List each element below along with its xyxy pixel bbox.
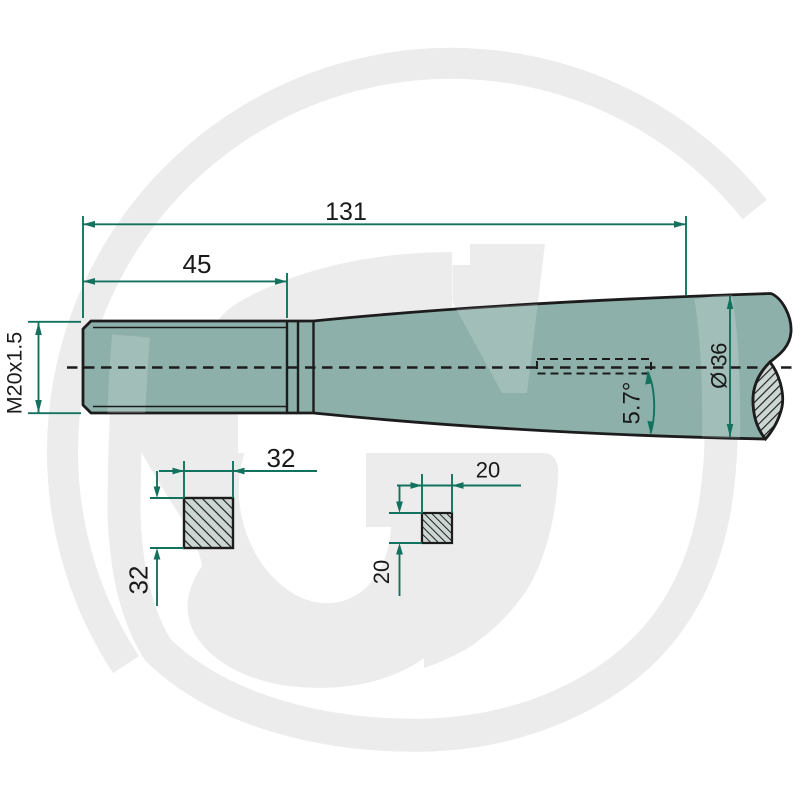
svg-text:45: 45 — [183, 249, 212, 279]
svg-text:M20x1.5: M20x1.5 — [3, 332, 27, 415]
svg-text:32: 32 — [267, 443, 296, 473]
svg-text:131: 131 — [325, 198, 367, 226]
svg-text:Ø 36: Ø 36 — [707, 343, 732, 389]
svg-text:32: 32 — [124, 566, 154, 595]
svg-text:20: 20 — [369, 560, 394, 584]
svg-text:5.7°: 5.7° — [619, 382, 646, 425]
svg-text:20: 20 — [476, 458, 500, 483]
